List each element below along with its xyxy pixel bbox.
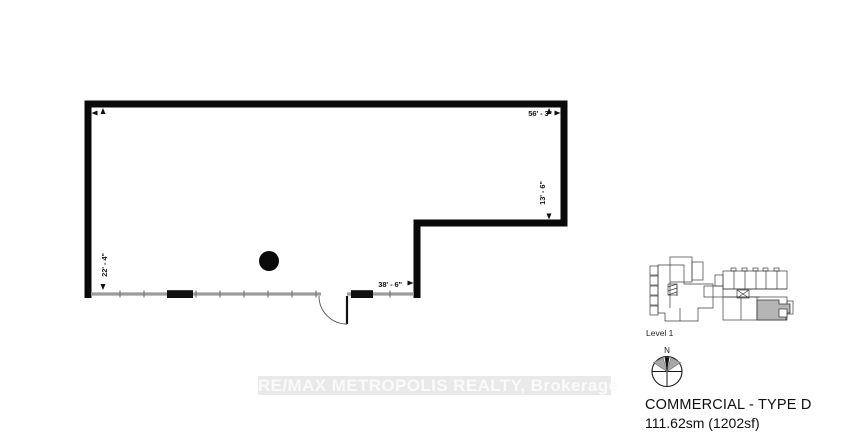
column-marker xyxy=(259,251,279,271)
storefront-glazing xyxy=(91,290,414,298)
dim-arrow-right xyxy=(408,281,414,286)
storefront-panel xyxy=(351,290,373,298)
brokerage-watermark: RE/MAX METROPOLIS REALTY, Brokerage xyxy=(258,376,611,395)
unit-type-label: COMMERCIAL - TYPE D xyxy=(645,396,812,414)
door-swing xyxy=(319,296,347,324)
unit-area-label: 111.62sm (1202sf) xyxy=(645,414,812,432)
storefront-panel xyxy=(167,290,193,298)
dim-arrow-left xyxy=(92,111,98,116)
key-plan-level-label: Level 1 xyxy=(646,328,674,338)
floorplan-page: 56' - 3" 13' - 6" 22' - 4" 38' - 6" xyxy=(0,0,864,446)
dimension-annotations: 56' - 3" 13' - 6" 22' - 4" 38' - 6" xyxy=(92,108,561,290)
north-letter: N xyxy=(664,346,670,355)
dimension-left-height: 22' - 4" xyxy=(100,253,109,277)
dim-arrow-up xyxy=(101,108,106,114)
north-arrow-icon: N xyxy=(652,346,682,387)
dim-arrow-down xyxy=(547,214,552,220)
unit-walls xyxy=(88,104,564,298)
keyplan-stairs-hatch xyxy=(668,284,677,295)
dim-arrow-right xyxy=(555,111,561,116)
dimension-right-height: 13' - 6" xyxy=(538,181,547,205)
dim-arrow-down xyxy=(101,284,106,290)
dimension-bottom-width: 38' - 6" xyxy=(378,280,402,289)
unit-title-block: COMMERCIAL - TYPE D 111.62sm (1202sf) xyxy=(645,396,812,432)
key-plan xyxy=(650,257,793,321)
